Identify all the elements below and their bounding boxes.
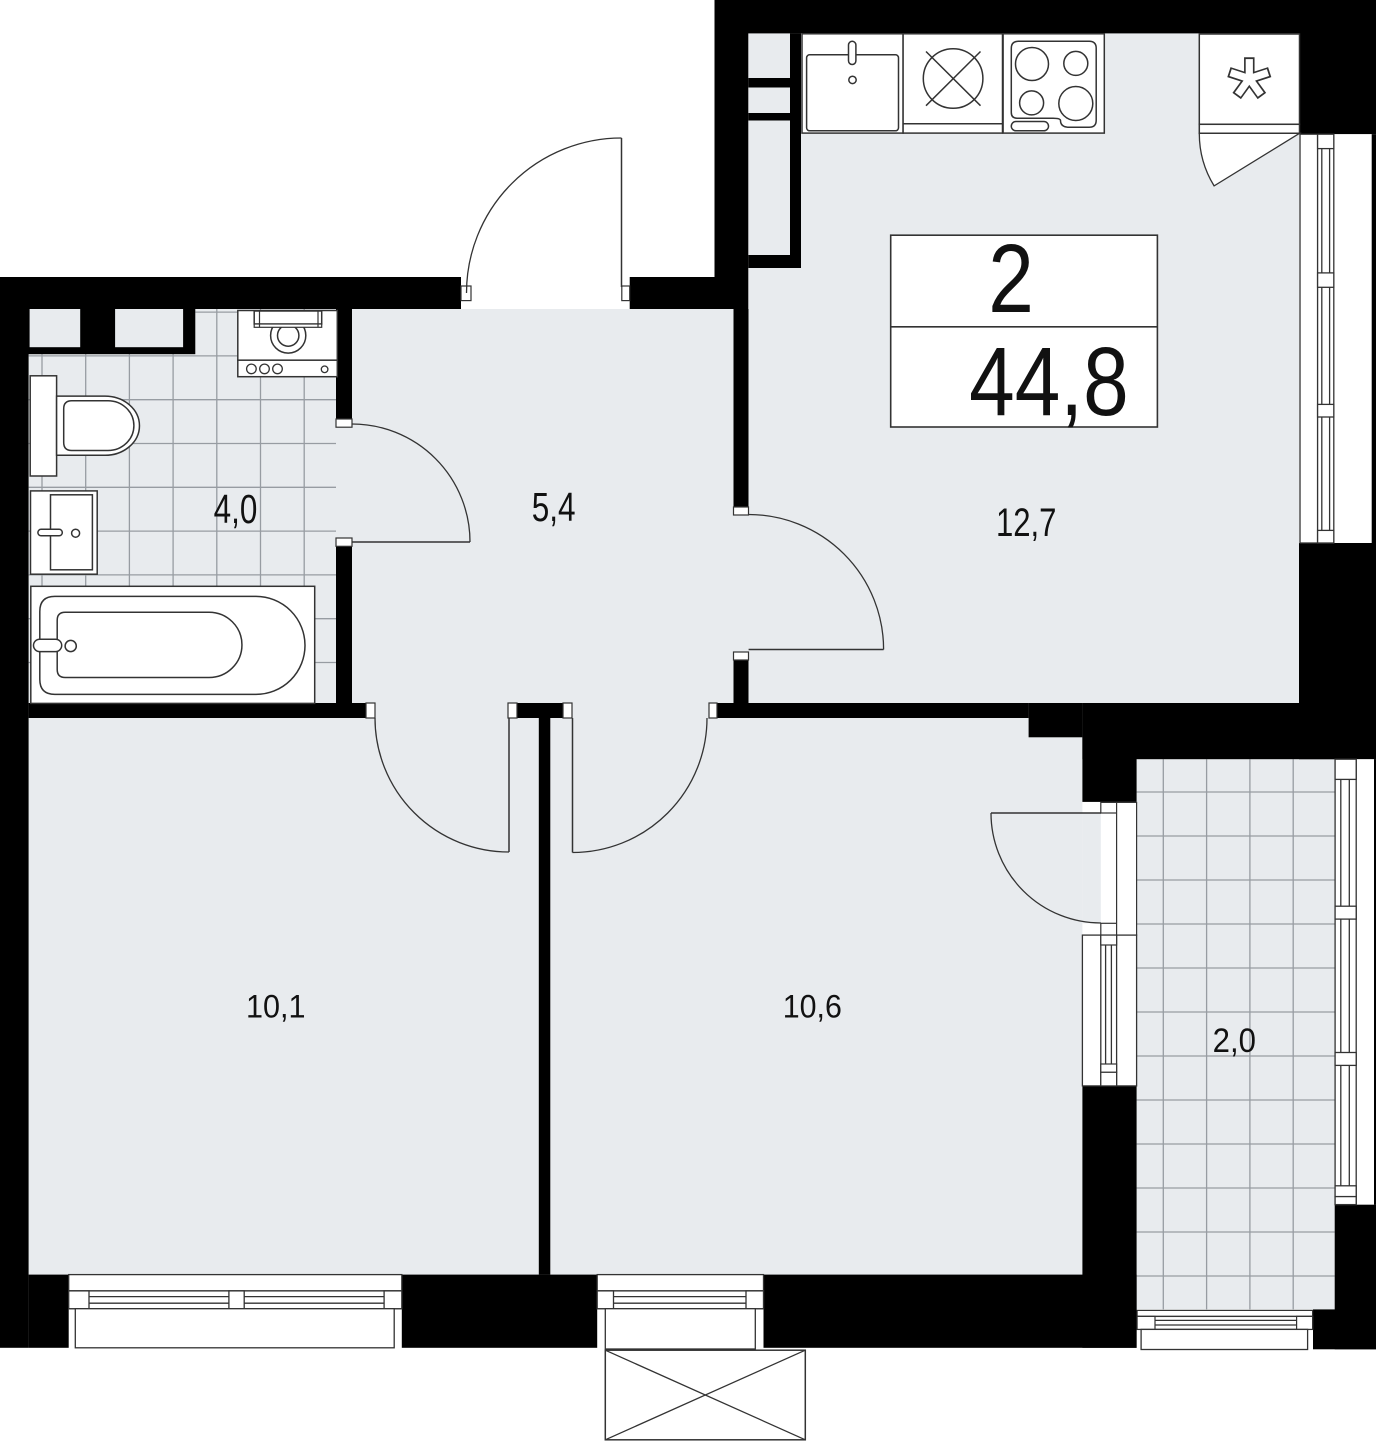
svg-text:44,8: 44,8 [969,327,1129,436]
svg-text:2: 2 [988,224,1034,333]
svg-text:4,0: 4,0 [214,486,258,532]
svg-text:2,0: 2,0 [1213,1022,1256,1060]
svg-text:10,1: 10,1 [246,988,306,1025]
svg-text:10,6: 10,6 [783,988,842,1025]
svg-text:5,4: 5,4 [532,484,576,530]
svg-text:12,7: 12,7 [996,501,1057,545]
